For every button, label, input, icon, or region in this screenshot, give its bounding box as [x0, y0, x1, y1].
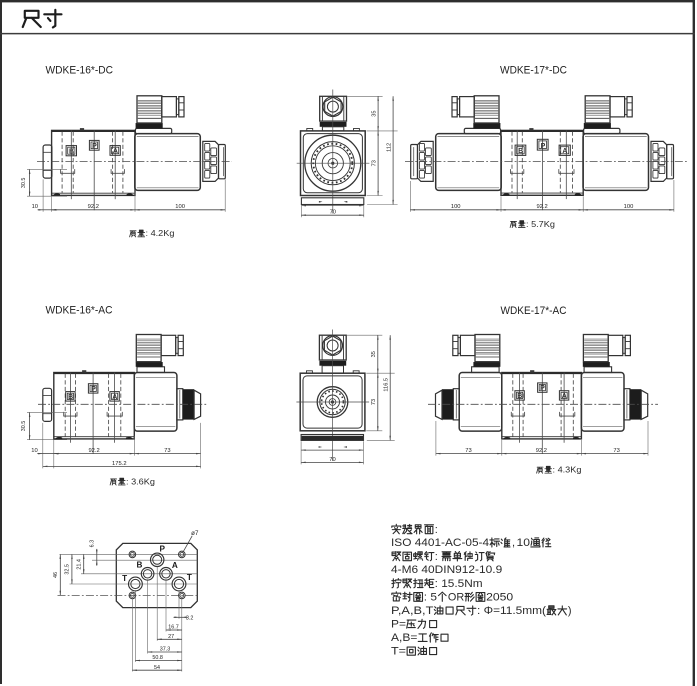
svg-text:70: 70: [329, 457, 335, 463]
svg-text:73: 73: [613, 448, 619, 454]
svg-text:27: 27: [168, 634, 174, 640]
svg-text:P: P: [540, 385, 545, 392]
svg-text:P,A,B,T: P,A,B,T: [391, 605, 434, 617]
svg-text::: :: [435, 551, 438, 563]
svg-text:4-M6 40DIN912-10.9: 4-M6 40DIN912-10.9: [391, 564, 502, 576]
svg-text:A: A: [113, 148, 118, 155]
svg-text:OR: OR: [448, 591, 464, 603]
svg-text::: :: [435, 524, 438, 536]
svg-text:A: A: [562, 148, 567, 155]
svg-text:37.3: 37.3: [160, 647, 171, 653]
svg-text:ISO 4401-AC-05-4: ISO 4401-AC-05-4: [391, 537, 489, 549]
svg-text:73: 73: [371, 399, 377, 405]
svg-text:: 5: : 5: [424, 591, 437, 603]
svg-text:32.5: 32.5: [65, 564, 71, 575]
svg-text:73: 73: [164, 448, 170, 454]
svg-text:B: B: [517, 393, 522, 400]
svg-text:A: A: [112, 394, 117, 401]
svg-text:: 15.5Nm: : 15.5Nm: [435, 578, 483, 590]
svg-text:50.8: 50.8: [152, 655, 163, 661]
svg-text:10: 10: [32, 204, 38, 210]
svg-text:175.2: 175.2: [112, 461, 127, 467]
svg-text:10: 10: [31, 448, 37, 454]
svg-text:30.5: 30.5: [21, 178, 27, 189]
svg-text:A: A: [562, 393, 567, 400]
svg-text:B: B: [136, 560, 142, 569]
svg-text:10: 10: [517, 537, 531, 549]
svg-text:T: T: [187, 573, 192, 582]
svg-text:30.5: 30.5: [21, 421, 27, 432]
svg-text:70: 70: [330, 210, 336, 216]
svg-text:WDKE-17*-DC: WDKE-17*-DC: [500, 65, 567, 77]
svg-text:100: 100: [175, 204, 185, 210]
svg-text:: 5.7Kg: : 5.7Kg: [526, 219, 555, 229]
svg-text:: Φ=11.5mm(: : Φ=11.5mm(: [477, 605, 546, 617]
svg-text:T: T: [122, 574, 127, 583]
svg-text:112: 112: [387, 143, 393, 152]
svg-text:92.2: 92.2: [88, 448, 99, 454]
svg-text:54: 54: [154, 665, 160, 671]
svg-text:35: 35: [371, 351, 377, 357]
svg-text:WDKE-16*-DC: WDKE-16*-DC: [46, 65, 114, 77]
svg-text:T=: T=: [391, 646, 406, 658]
svg-text:35: 35: [372, 110, 378, 116]
svg-text:B: B: [68, 394, 73, 401]
svg-text:2050: 2050: [486, 591, 513, 603]
svg-text:P=: P=: [391, 618, 406, 630]
svg-text:P: P: [91, 386, 96, 393]
svg-text:46: 46: [53, 572, 59, 578]
svg-text:: 3.6Kg: : 3.6Kg: [126, 476, 155, 486]
svg-text:92.2: 92.2: [536, 204, 547, 210]
svg-text:WDKE-17*-AC: WDKE-17*-AC: [501, 305, 567, 317]
svg-text:ø7: ø7: [191, 530, 199, 537]
svg-text:P: P: [541, 143, 546, 150]
svg-text:B: B: [69, 149, 74, 156]
svg-text:6.3: 6.3: [90, 540, 96, 548]
svg-text:B: B: [518, 148, 523, 155]
svg-text:: 4.3Kg: : 4.3Kg: [553, 465, 582, 475]
svg-text:WDKE-16*-AC: WDKE-16*-AC: [46, 305, 113, 317]
svg-text:A,B=: A,B=: [391, 632, 417, 644]
svg-text:,: ,: [512, 537, 515, 549]
svg-text:21.4: 21.4: [77, 559, 83, 570]
svg-text:73: 73: [372, 160, 378, 166]
svg-text:73: 73: [465, 448, 471, 454]
svg-text:P: P: [92, 143, 97, 150]
svg-text:P: P: [159, 545, 165, 554]
svg-text:16.7: 16.7: [168, 625, 179, 631]
svg-text:92.2: 92.2: [88, 204, 99, 210]
svg-text:): ): [568, 605, 572, 617]
svg-text:3.2: 3.2: [186, 615, 194, 621]
svg-text:100: 100: [624, 204, 634, 210]
svg-text:100: 100: [451, 204, 461, 210]
svg-text:: 4.2Kg: : 4.2Kg: [146, 228, 175, 238]
svg-text:A: A: [172, 561, 178, 570]
svg-text:92.2: 92.2: [536, 448, 547, 454]
svg-text:116.5: 116.5: [384, 378, 390, 392]
